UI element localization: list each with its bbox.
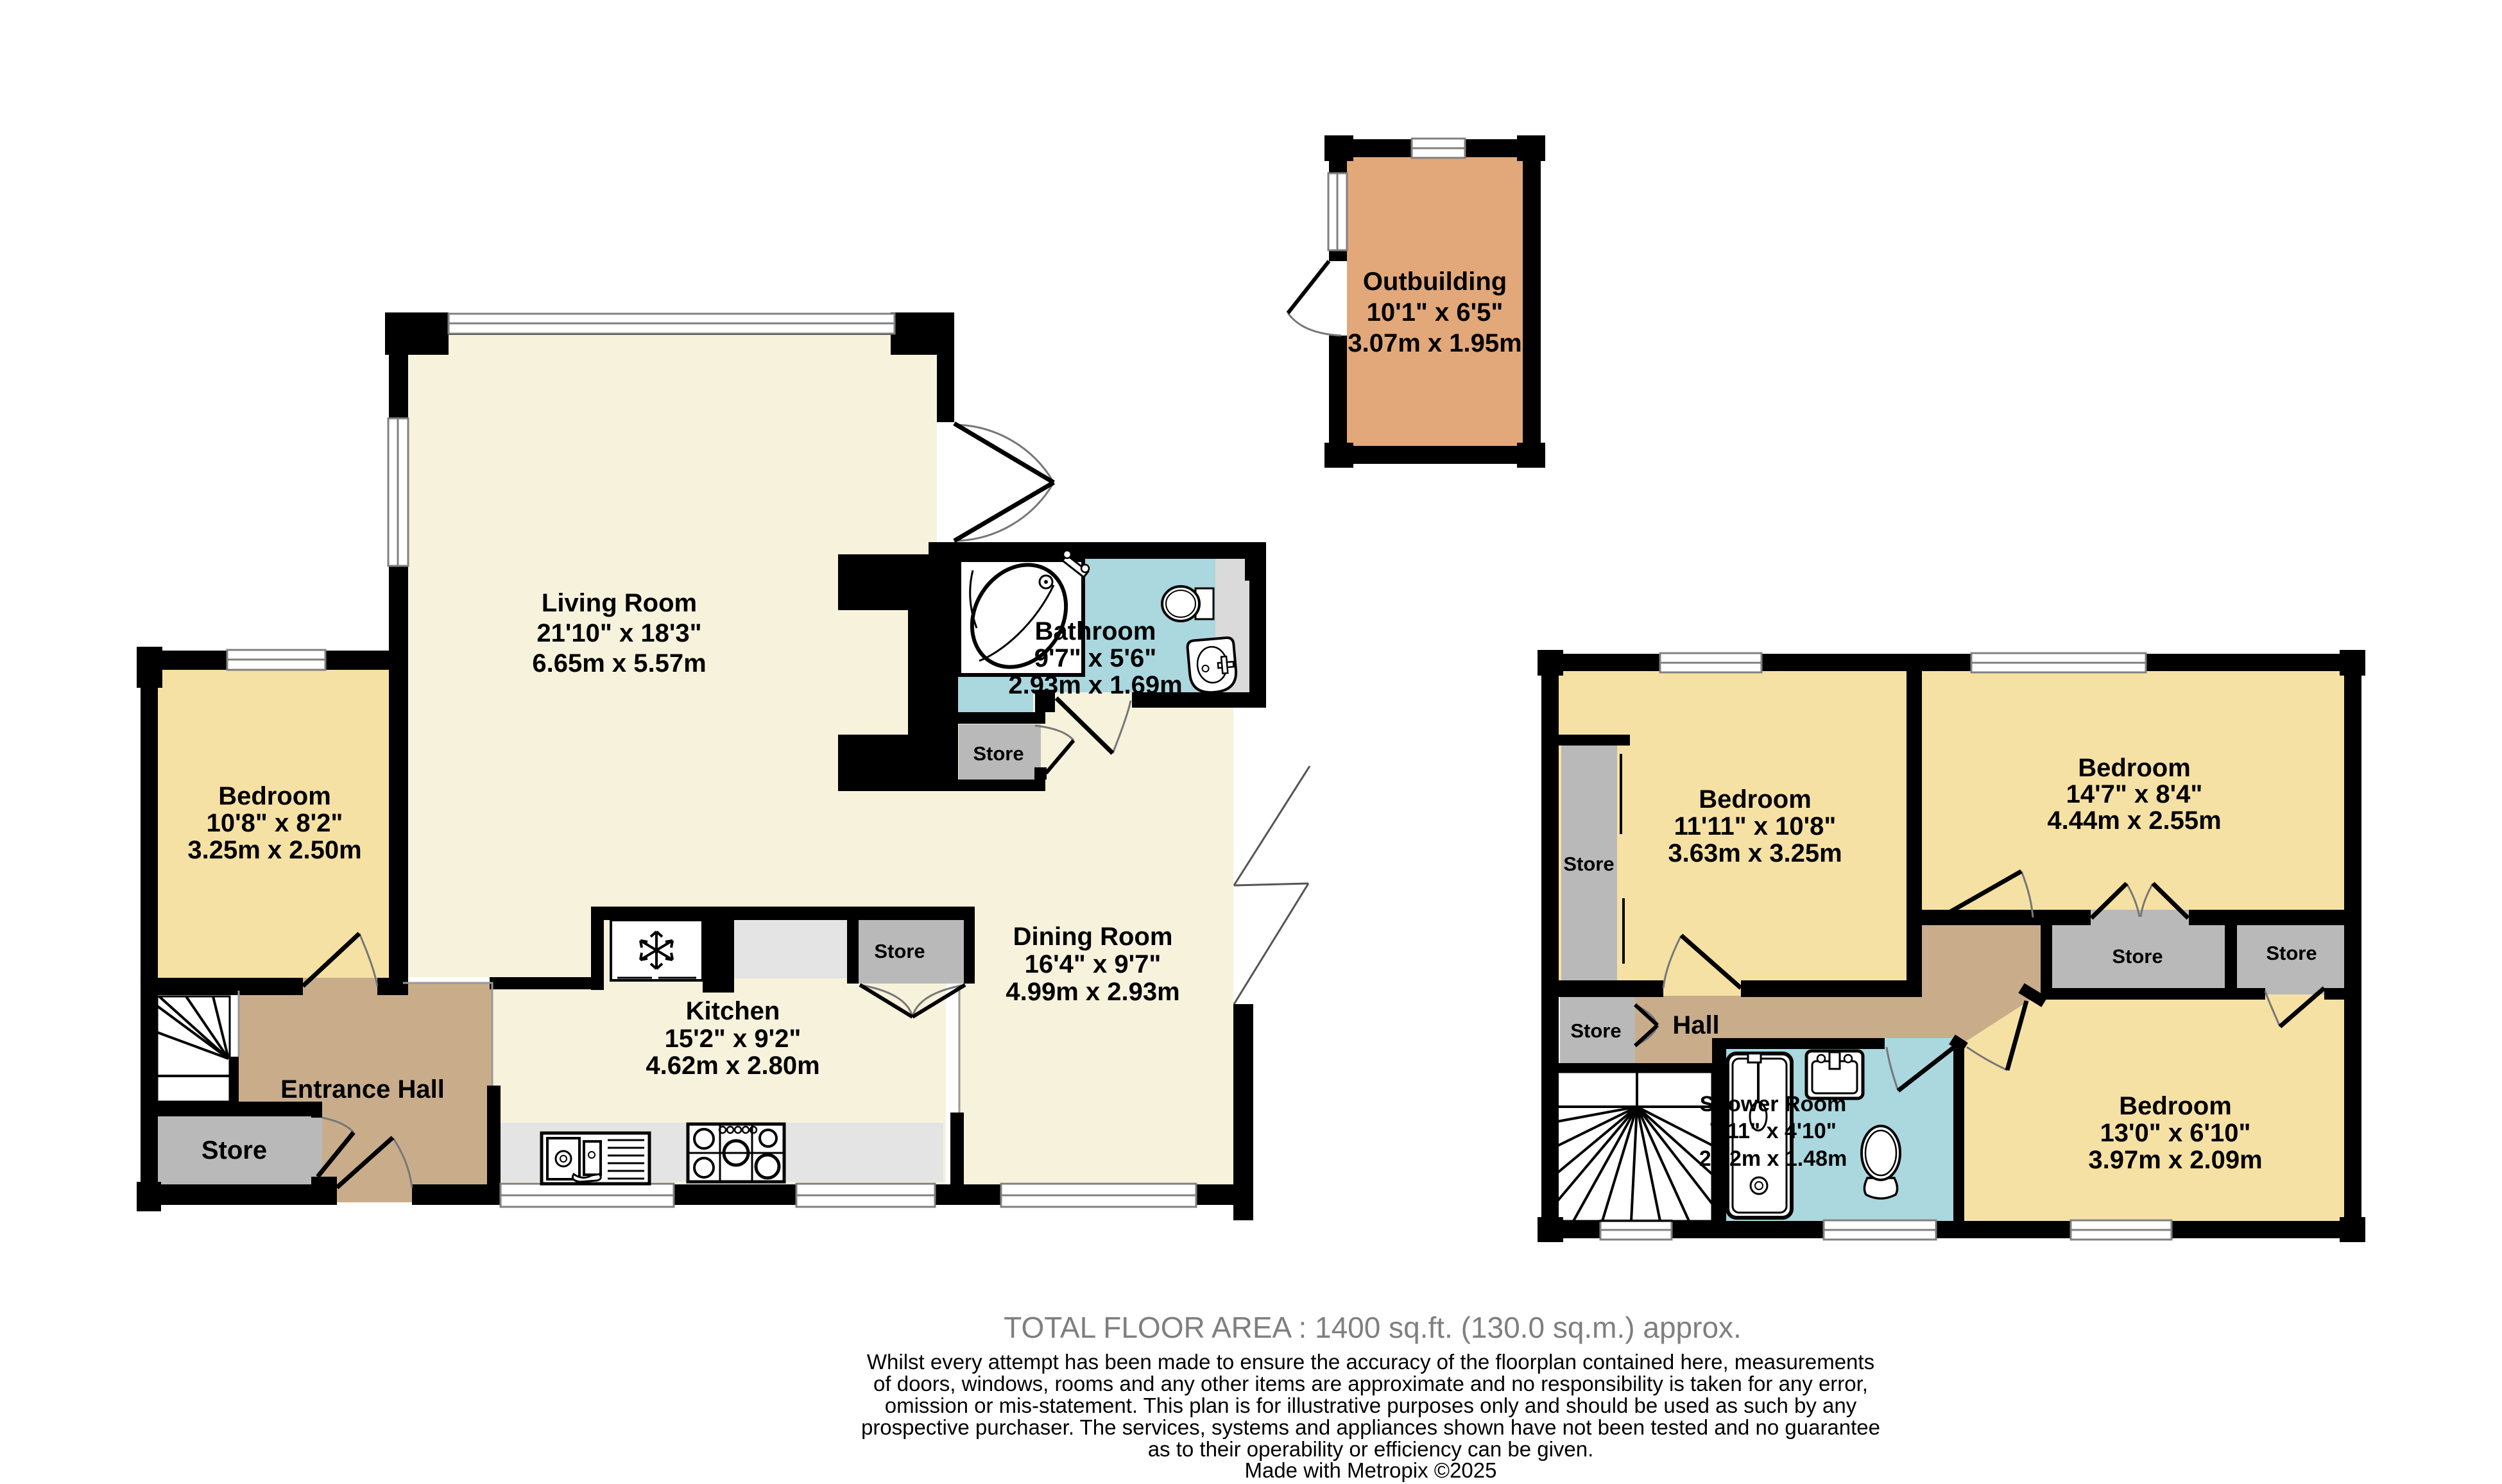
svg-text:16'4" x 9'7": 16'4" x 9'7" (1025, 950, 1161, 978)
svg-text:Made with Metropix ©2025: Made with Metropix ©2025 (1244, 1458, 1496, 1482)
svg-text:4.62m x 2.80m: 4.62m x 2.80m (646, 1052, 819, 1080)
svg-text:2.93m x 1.69m: 2.93m x 1.69m (1008, 671, 1182, 699)
svg-text:Whilst every attempt has been: Whilst every attempt has been made to en… (867, 1350, 1874, 1374)
svg-text:3.63m x 3.25m: 3.63m x 3.25m (1668, 839, 1842, 867)
svg-text:TOTAL FLOOR AREA : 1400 sq.ft.: TOTAL FLOOR AREA : 1400 sq.ft. (130.0 sq… (1004, 1311, 1742, 1344)
svg-text:Store: Store (1570, 1019, 1621, 1042)
svg-text:omission or mis-statement. Thi: omission or mis-statement. This plan is … (885, 1394, 1857, 1417)
svg-text:21'10" x 18'3": 21'10" x 18'3" (536, 619, 701, 647)
svg-text:11'11" x 10'8": 11'11" x 10'8" (1674, 812, 1837, 840)
svg-text:10'8" x 8'2": 10'8" x 8'2" (207, 809, 343, 837)
svg-text:10'1" x 6'5": 10'1" x 6'5" (1367, 298, 1504, 327)
svg-text:Store: Store (973, 742, 1024, 765)
svg-text:2.42m x 1.48m: 2.42m x 1.48m (1699, 1147, 1847, 1171)
svg-text:Store: Store (2266, 942, 2317, 964)
svg-text:Store: Store (201, 1136, 267, 1164)
svg-text:3.25m x 2.50m: 3.25m x 2.50m (187, 836, 361, 864)
svg-text:4.44m x 2.55m: 4.44m x 2.55m (2047, 806, 2221, 835)
svg-text:as to their operability or eff: as to their operability or efficiency ca… (1148, 1437, 1594, 1461)
svg-text:of doors, windows, rooms and a: of doors, windows, rooms and any other i… (873, 1372, 1868, 1395)
svg-text:4.99m x 2.93m: 4.99m x 2.93m (1006, 978, 1179, 1006)
svg-text:Kitchen: Kitchen (686, 997, 780, 1025)
svg-text:Bedroom: Bedroom (2119, 1092, 2232, 1120)
svg-text:Store: Store (1563, 853, 1614, 875)
svg-text:Living Room: Living Room (542, 589, 697, 617)
svg-text:6.65m x 5.57m: 6.65m x 5.57m (532, 649, 706, 678)
svg-text:9'7" x 5'6": 9'7" x 5'6" (1034, 644, 1156, 672)
svg-text:3.07m x 1.95m: 3.07m x 1.95m (1348, 329, 1521, 357)
svg-text:7'11" x 4'10": 7'11" x 4'10" (1709, 1119, 1837, 1143)
svg-text:13'0" x 6'10": 13'0" x 6'10" (2100, 1119, 2251, 1147)
svg-text:Store: Store (2112, 945, 2163, 968)
svg-text:prospective purchaser. The ser: prospective purchaser. The services, sys… (861, 1415, 1880, 1439)
svg-text:15'2" x 9'2": 15'2" x 9'2" (665, 1025, 801, 1053)
svg-text:Shower Room: Shower Room (1700, 1092, 1847, 1116)
svg-text:Outbuilding: Outbuilding (1363, 268, 1507, 296)
svg-text:3.97m x 2.09m: 3.97m x 2.09m (2088, 1146, 2262, 1174)
svg-text:Bedroom: Bedroom (1699, 785, 1812, 814)
svg-text:Store: Store (874, 940, 925, 962)
svg-text:Bedroom: Bedroom (2078, 754, 2191, 782)
svg-text:Hall: Hall (1672, 1011, 1719, 1039)
svg-text:14'7" x 8'4": 14'7" x 8'4" (2066, 780, 2203, 808)
svg-text:Bedroom: Bedroom (218, 782, 331, 810)
svg-text:Bathroom: Bathroom (1035, 617, 1156, 645)
svg-text:Entrance Hall: Entrance Hall (280, 1075, 445, 1104)
svg-text:Dining Room: Dining Room (1013, 923, 1173, 951)
